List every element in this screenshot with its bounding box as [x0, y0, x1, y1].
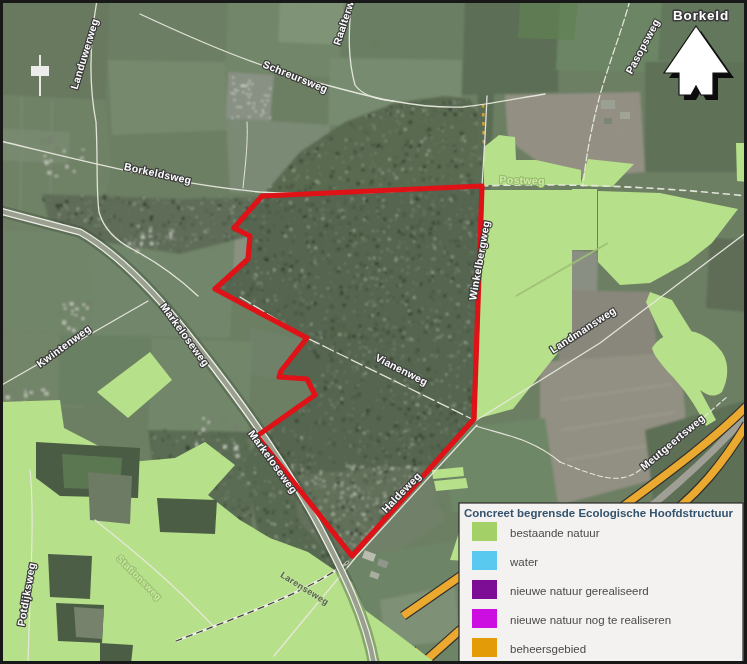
svg-text:Postweg: Postweg — [499, 173, 545, 187]
svg-text:water: water — [509, 556, 538, 568]
svg-text:beheersgebied: beheersgebied — [510, 643, 586, 655]
svg-text:Concreet begrensde Ecologische: Concreet begrensde Ecologische Hoofdstru… — [464, 507, 734, 519]
svg-text:nieuwe natuur nog te realisere: nieuwe natuur nog te realiseren — [510, 614, 671, 626]
svg-text:bestaande natuur: bestaande natuur — [510, 527, 600, 539]
svg-text:nieuwe natuur gerealiseerd: nieuwe natuur gerealiseerd — [510, 585, 649, 597]
svg-text:Borkeld: Borkeld — [673, 8, 729, 23]
